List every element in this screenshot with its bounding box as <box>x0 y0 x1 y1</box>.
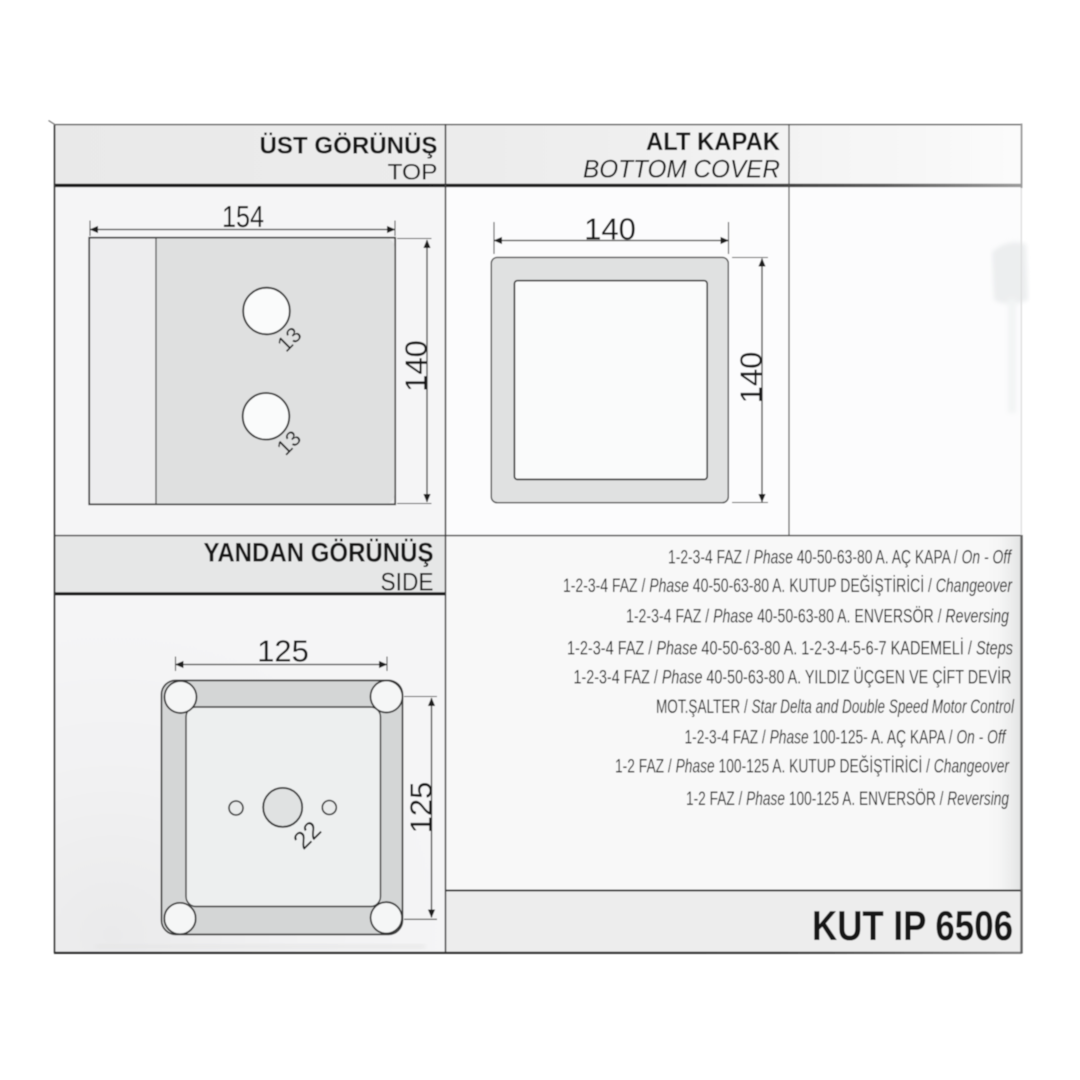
svg-text:1-2-3-4 FAZ / Phase 40-50-63-: 1-2-3-4 FAZ / Phase 40-50-63-80 A. YILDI… <box>574 666 1012 689</box>
svg-text:ALT KAPAK: ALT KAPAK <box>646 128 780 156</box>
svg-text:125: 125 <box>404 782 439 834</box>
svg-text:YANDAN GÖRÜNÜŞ: YANDAN GÖRÜNÜŞ <box>204 538 434 568</box>
svg-text:1-2-3-4 FAZ / Phase 40-50-63-: 1-2-3-4 FAZ / Phase 40-50-63-80 A. 1-2-3… <box>567 637 1013 660</box>
svg-text:1-2 FAZ / Phase 100-125 A. KUT: 1-2 FAZ / Phase 100-125 A. KUTUP DEĞİŞTİ… <box>615 755 1010 778</box>
svg-text:SIDE: SIDE <box>381 569 434 597</box>
svg-text:154: 154 <box>222 199 264 234</box>
svg-text:1-2 FAZ / Phase 100-125 A. ENV: 1-2 FAZ / Phase 100-125 A. ENVERSÖR / Re… <box>686 788 1009 810</box>
svg-text:BOTTOM COVER: BOTTOM COVER <box>583 156 780 184</box>
svg-text:140: 140 <box>734 352 769 404</box>
svg-text:1-2-3-4 FAZ / Phase 100-125-: 1-2-3-4 FAZ / Phase 100-125- A. AÇ KAPA … <box>685 727 1008 749</box>
svg-text:TOP: TOP <box>388 160 438 185</box>
svg-text:KUT IP 6506: KUT IP 6506 <box>812 902 1013 949</box>
svg-text:1-2-3-4 FAZ / Phase 40-50-63-: 1-2-3-4 FAZ / Phase 40-50-63-80 A. ENVER… <box>626 606 1009 628</box>
svg-text:1-2-3-4 FAZ / Phase 40-50-63-: 1-2-3-4 FAZ / Phase 40-50-63-80 A. AÇ KA… <box>668 546 1013 568</box>
svg-text:125: 125 <box>257 634 309 669</box>
svg-text:ÜST GÖRÜNÜŞ: ÜST GÖRÜNÜŞ <box>260 133 438 160</box>
svg-text:140: 140 <box>584 212 636 247</box>
svg-text:140: 140 <box>399 340 434 392</box>
svg-text:1-2-3-4 FAZ / Phase 40-50-63-: 1-2-3-4 FAZ / Phase 40-50-63-80 A. KUTUP… <box>563 574 1013 597</box>
svg-text:MOT.ŞALTER / Star Delta and Do: MOT.ŞALTER / Star Delta and Double Speed… <box>656 696 1014 718</box>
